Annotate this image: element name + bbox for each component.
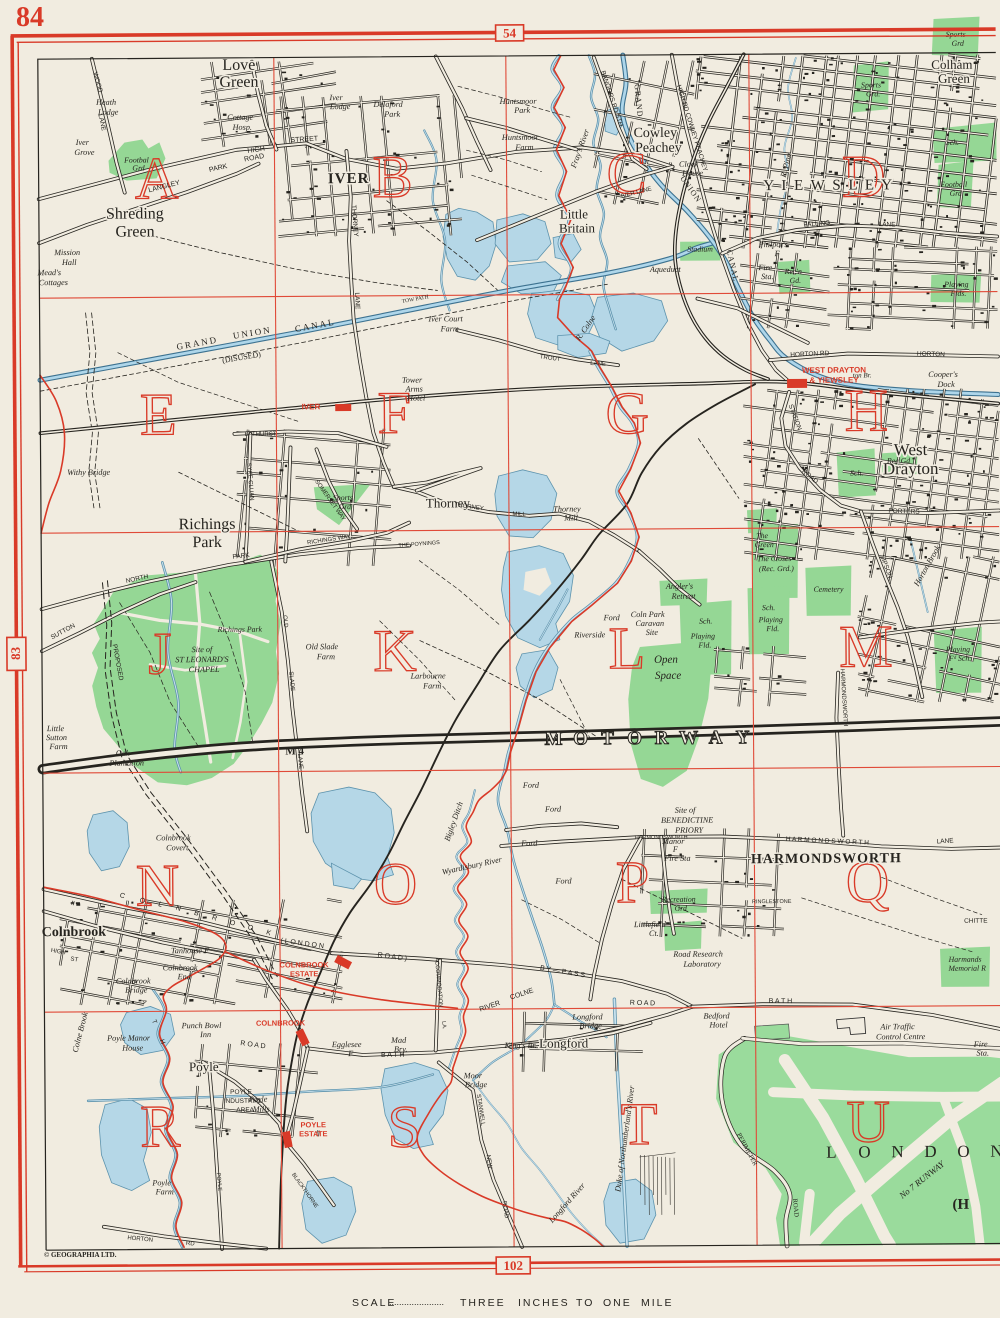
svg-text:INDUSTRIAL: INDUSTRIAL <box>224 1098 263 1105</box>
svg-text:Richings Park: Richings Park <box>217 625 263 634</box>
svg-text:T: T <box>601 728 614 749</box>
svg-text:IVER: IVER <box>328 171 370 187</box>
svg-text:G: G <box>605 380 649 446</box>
svg-text:Moor: Moor <box>463 1071 483 1080</box>
svg-text:Egglesee: Egglesee <box>331 1040 362 1049</box>
svg-text:Cottage: Cottage <box>227 113 253 122</box>
svg-text:HARMONDSWORTH: HARMONDSWORTH <box>635 835 688 841</box>
svg-text:Grd: Grd <box>675 904 687 913</box>
svg-text:Bridge: Bridge <box>579 1021 602 1030</box>
svg-text:Iver: Iver <box>328 93 343 102</box>
svg-text:Philpot's: Philpot's <box>758 240 788 249</box>
svg-text:MILE: MILE <box>641 1297 674 1309</box>
svg-text:Farm: Farm <box>514 143 533 152</box>
svg-text:Green: Green <box>219 74 258 91</box>
svg-text:Little: Little <box>46 724 65 733</box>
svg-text:Poyle Manor: Poyle Manor <box>106 1033 151 1042</box>
svg-text:S: S <box>387 1094 421 1160</box>
svg-text:W: W <box>679 728 698 749</box>
svg-text:Poyle: Poyle <box>151 1178 171 1187</box>
svg-text:INCHES: INCHES <box>518 1297 570 1309</box>
svg-text:Delaford: Delaford <box>372 100 403 109</box>
svg-text:ST LEONARD'S: ST LEONARD'S <box>175 655 228 664</box>
svg-text:Fld.: Fld. <box>697 641 711 650</box>
svg-text:Covert: Covert <box>166 843 189 852</box>
svg-text:Ford: Ford <box>603 613 621 622</box>
svg-text:RD: RD <box>186 1241 196 1248</box>
svg-text:Colnbrook: Colnbrook <box>163 963 198 972</box>
svg-text:Flds.: Flds. <box>950 289 967 298</box>
svg-text:F: F <box>347 1049 354 1058</box>
svg-text:Y I E W S L E Y: Y I E W S L E Y <box>763 177 894 194</box>
svg-text:(H: (H <box>952 1197 969 1213</box>
svg-text:Site of: Site of <box>675 806 697 815</box>
svg-text:Aqueduct: Aqueduct <box>649 265 682 274</box>
svg-text:Hall: Hall <box>61 258 77 267</box>
svg-text:AREA: AREA <box>236 1107 254 1114</box>
svg-text:Old Slade: Old Slade <box>306 642 339 651</box>
svg-text:RINGLESTONE: RINGLESTONE <box>752 899 792 905</box>
svg-text:54: 54 <box>503 25 517 40</box>
svg-text:LANE: LANE <box>590 361 606 368</box>
svg-text:TO: TO <box>576 1297 594 1309</box>
svg-text:Grove: Grove <box>74 148 95 157</box>
svg-text:Angler's: Angler's <box>665 582 693 591</box>
svg-text:Thorney: Thorney <box>553 504 581 513</box>
svg-text:Open: Open <box>654 654 678 666</box>
svg-text:Control Centre: Control Centre <box>876 1032 926 1041</box>
svg-text:Longford: Longford <box>571 1012 603 1021</box>
svg-text:Space: Space <box>655 670 681 682</box>
svg-text:Retreat: Retreat <box>671 592 697 601</box>
svg-text:Grd: Grd <box>952 39 964 48</box>
svg-text:House: House <box>121 1043 143 1052</box>
svg-text:O: O <box>573 728 588 749</box>
svg-text:BATHURST: BATHURST <box>244 432 276 438</box>
svg-text:Poyle: Poyle <box>189 1059 219 1074</box>
svg-text:MILL: MILL <box>512 512 526 518</box>
svg-text:Shreding: Shreding <box>106 205 164 222</box>
svg-text:Farm: Farm <box>48 742 67 751</box>
svg-text:Colnbrook: Colnbrook <box>42 925 107 940</box>
svg-text:Mead's: Mead's <box>36 268 61 277</box>
svg-text:Fld.: Fld. <box>765 624 779 633</box>
svg-text:Inn: Inn <box>199 1030 211 1039</box>
svg-text:COLNBROOK: COLNBROOK <box>280 960 330 969</box>
svg-text:Football: Football <box>939 180 967 189</box>
svg-text:Larbourne: Larbourne <box>410 671 446 680</box>
svg-text:Farm: Farm <box>422 681 441 690</box>
svg-text:Sch.: Sch. <box>699 617 712 626</box>
svg-text:Ford: Ford <box>522 781 540 790</box>
svg-text:M 4: M 4 <box>285 745 304 757</box>
svg-text:Ford: Ford <box>520 839 538 848</box>
svg-text:Caravan: Caravan <box>635 619 664 628</box>
svg-text:Stadium: Stadium <box>687 245 713 254</box>
svg-text:Dock: Dock <box>936 380 955 389</box>
svg-text:Site of: Site of <box>192 645 214 654</box>
svg-text:IVER: IVER <box>302 402 321 411</box>
svg-text:Iver Court: Iver Court <box>427 314 463 323</box>
svg-text:ESTATE: ESTATE <box>299 1129 328 1138</box>
svg-text:Gd.: Gd. <box>790 276 802 285</box>
svg-text:F: F <box>774 249 781 258</box>
svg-text:Love: Love <box>222 57 255 74</box>
svg-text:Y: Y <box>736 727 750 748</box>
svg-text:Mad: Mad <box>390 1036 407 1045</box>
svg-text:Fᵈ Sch.: Fᵈ Sch. <box>948 654 971 663</box>
svg-text:J: J <box>148 620 172 686</box>
svg-text:Rec'n: Rec'n <box>784 267 802 276</box>
svg-text:Playing: Playing <box>690 631 715 640</box>
svg-text:N: N <box>136 852 180 918</box>
svg-text:ton Br.: ton Br. <box>853 371 872 379</box>
svg-text:Sch.: Sch. <box>762 603 775 612</box>
svg-text:Ct.: Ct. <box>649 929 659 938</box>
svg-text:Sch.: Sch. <box>946 138 959 147</box>
svg-text:P: P <box>616 849 650 915</box>
svg-text:H: H <box>844 377 888 443</box>
svg-text:Hotel: Hotel <box>708 1020 728 1029</box>
svg-text:ONE: ONE <box>603 1297 632 1309</box>
svg-text:Grd: Grd <box>132 163 144 172</box>
svg-text:Grd.: Grd. <box>866 89 880 98</box>
svg-text:Playing: Playing <box>758 615 783 624</box>
svg-text:83: 83 <box>8 646 23 660</box>
svg-text:Sports: Sports <box>333 493 353 502</box>
svg-text:F: F <box>672 845 679 854</box>
svg-text:Sutton: Sutton <box>46 733 67 742</box>
svg-text:O: O <box>374 851 418 917</box>
svg-text:N: N <box>891 1142 903 1161</box>
svg-text:N: N <box>990 1142 1000 1161</box>
svg-text:Mills: Mills <box>252 1105 270 1114</box>
svg-text:Hosp.: Hosp. <box>232 123 252 132</box>
svg-text:Withy Bridge: Withy Bridge <box>67 468 110 477</box>
svg-text:Farm: Farm <box>316 652 335 661</box>
svg-text:Tanhouse F: Tanhouse F <box>171 946 210 955</box>
svg-text:Punch Bowl: Punch Bowl <box>181 1021 223 1030</box>
svg-text:Peachey: Peachey <box>635 141 682 156</box>
svg-text:© GEOGRAPHIA LTD.: © GEOGRAPHIA LTD. <box>44 1251 117 1259</box>
svg-text:B A T H: B A T H <box>769 998 793 1005</box>
svg-text:CHITTE: CHITTE <box>964 918 988 925</box>
svg-text:......................: ...................... <box>389 1297 444 1307</box>
svg-text:LANE: LANE <box>353 292 361 310</box>
svg-text:Green: Green <box>938 71 970 86</box>
svg-text:Little: Little <box>560 206 588 221</box>
svg-text:Recreation: Recreation <box>661 895 696 904</box>
svg-text:Cemetery: Cemetery <box>814 585 844 594</box>
svg-text:PORTERS: PORTERS <box>888 508 920 516</box>
svg-text:King's Br.: King's Br. <box>504 1041 537 1050</box>
svg-text:Playing: Playing <box>945 645 970 654</box>
svg-text:HORTON: HORTON <box>917 351 945 359</box>
svg-text:Site: Site <box>646 628 659 637</box>
svg-text:End: End <box>177 972 192 981</box>
svg-text:Clock: Clock <box>679 160 699 169</box>
svg-text:Fire Sta: Fire Sta <box>663 854 690 863</box>
svg-text:Littlefield: Littlefield <box>633 920 667 929</box>
svg-text:OLD: OLD <box>281 615 288 629</box>
svg-text:B: B <box>372 144 412 210</box>
svg-text:Green: Green <box>755 540 774 549</box>
svg-text:Park: Park <box>513 106 530 115</box>
svg-text:HARMONDSWORTH: HARMONDSWORTH <box>751 851 902 867</box>
svg-text:Green: Green <box>115 223 154 240</box>
svg-text:Huntsmoor: Huntsmoor <box>501 133 540 142</box>
svg-text:O: O <box>627 728 642 749</box>
svg-text:Sports: Sports <box>861 80 881 89</box>
svg-text:Road Research: Road Research <box>672 949 723 958</box>
svg-text:M: M <box>839 613 893 679</box>
svg-text:LANE: LANE <box>878 221 896 228</box>
svg-text:Laboratory: Laboratory <box>682 959 721 968</box>
svg-text:Bedford: Bedford <box>703 1011 730 1020</box>
svg-text:(Rec. Grd.): (Rec. Grd.) <box>759 564 794 573</box>
svg-text:Park: Park <box>192 534 221 551</box>
svg-text:THREE: THREE <box>460 1297 506 1309</box>
svg-text:102: 102 <box>503 1258 523 1273</box>
svg-text:Longford: Longford <box>539 1035 589 1050</box>
svg-text:Heath: Heath <box>95 98 116 107</box>
svg-text:Memorial R: Memorial R <box>947 964 986 973</box>
svg-text:Harmands: Harmands <box>948 955 982 964</box>
svg-text:R: R <box>140 1093 180 1159</box>
svg-text:Farm: Farm <box>440 324 459 333</box>
svg-text:Air Traffic: Air Traffic <box>879 1022 915 1031</box>
svg-text:L: L <box>826 1143 837 1162</box>
svg-text:LA.: LA. <box>440 1021 447 1030</box>
svg-text:Colham: Colham <box>931 57 972 72</box>
svg-text:Hotel: Hotel <box>406 394 426 403</box>
svg-text:Grd: Grd <box>950 189 962 198</box>
svg-text:R: R <box>655 728 669 749</box>
svg-text:M: M <box>545 729 563 750</box>
svg-text:Mission: Mission <box>53 248 80 257</box>
svg-text:CHAPEL: CHAPEL <box>189 665 220 674</box>
svg-text:Sta.: Sta. <box>976 1049 989 1058</box>
svg-text:O: O <box>858 1142 870 1161</box>
svg-text:Ford: Ford <box>544 805 562 814</box>
svg-text:POYLE: POYLE <box>300 1120 325 1129</box>
svg-text:Sta.: Sta. <box>761 272 774 281</box>
svg-text:Tower: Tower <box>402 376 423 385</box>
svg-text:Cowley: Cowley <box>633 126 677 141</box>
svg-text:Sch.: Sch. <box>850 468 863 477</box>
svg-text:Bridge: Bridge <box>465 1080 488 1089</box>
svg-text:Plantation: Plantation <box>108 758 144 767</box>
svg-text:84: 84 <box>16 2 44 33</box>
svg-text:Rec Gd: Rec Gd <box>886 456 910 465</box>
svg-text:COLNBROOK: COLNBROOK <box>256 1018 306 1027</box>
svg-text:Fire: Fire <box>757 263 772 272</box>
svg-text:B A T H: B A T H <box>381 1052 405 1059</box>
svg-text:BENEDICTINE: BENEDICTINE <box>661 816 713 825</box>
svg-text:Fire: Fire <box>973 1040 988 1049</box>
svg-text:Farm: Farm <box>155 1187 174 1196</box>
svg-text:ESTATE: ESTATE <box>290 969 319 978</box>
svg-text:Cottages: Cottages <box>39 278 68 287</box>
svg-text:Playing: Playing <box>943 280 968 289</box>
svg-text:E: E <box>140 381 177 447</box>
svg-text:Park: Park <box>383 110 400 119</box>
svg-text:Bridge: Bridge <box>125 985 148 994</box>
svg-text:O: O <box>957 1142 969 1161</box>
svg-text:Ford: Ford <box>554 876 572 885</box>
svg-text:LANE: LANE <box>936 837 954 845</box>
svg-text:Mill: Mill <box>563 513 578 522</box>
svg-text:PRIORY: PRIORY <box>674 826 705 835</box>
svg-text:Richings: Richings <box>179 516 236 533</box>
svg-text:Lodge: Lodge <box>329 102 351 111</box>
svg-text:Huntsmoor: Huntsmoor <box>499 97 538 106</box>
svg-text:Colnbrook: Colnbrook <box>156 833 191 842</box>
svg-text:Riverside: Riverside <box>573 630 605 639</box>
svg-text:Coln Park: Coln Park <box>631 610 665 619</box>
svg-text:POYLE: POYLE <box>230 1089 252 1096</box>
svg-text:Cooper's: Cooper's <box>928 370 958 379</box>
svg-text:A: A <box>709 727 723 748</box>
svg-text:Britain: Britain <box>559 220 596 235</box>
svg-text:Arms: Arms <box>404 385 422 394</box>
svg-text:Oak: Oak <box>116 749 130 758</box>
svg-text:The Closes: The Closes <box>757 554 792 563</box>
svg-text:R O A D: R O A D <box>630 1000 655 1008</box>
svg-text:The: The <box>756 531 768 540</box>
svg-text:Iver: Iver <box>75 138 90 147</box>
svg-text:D: D <box>924 1142 936 1161</box>
